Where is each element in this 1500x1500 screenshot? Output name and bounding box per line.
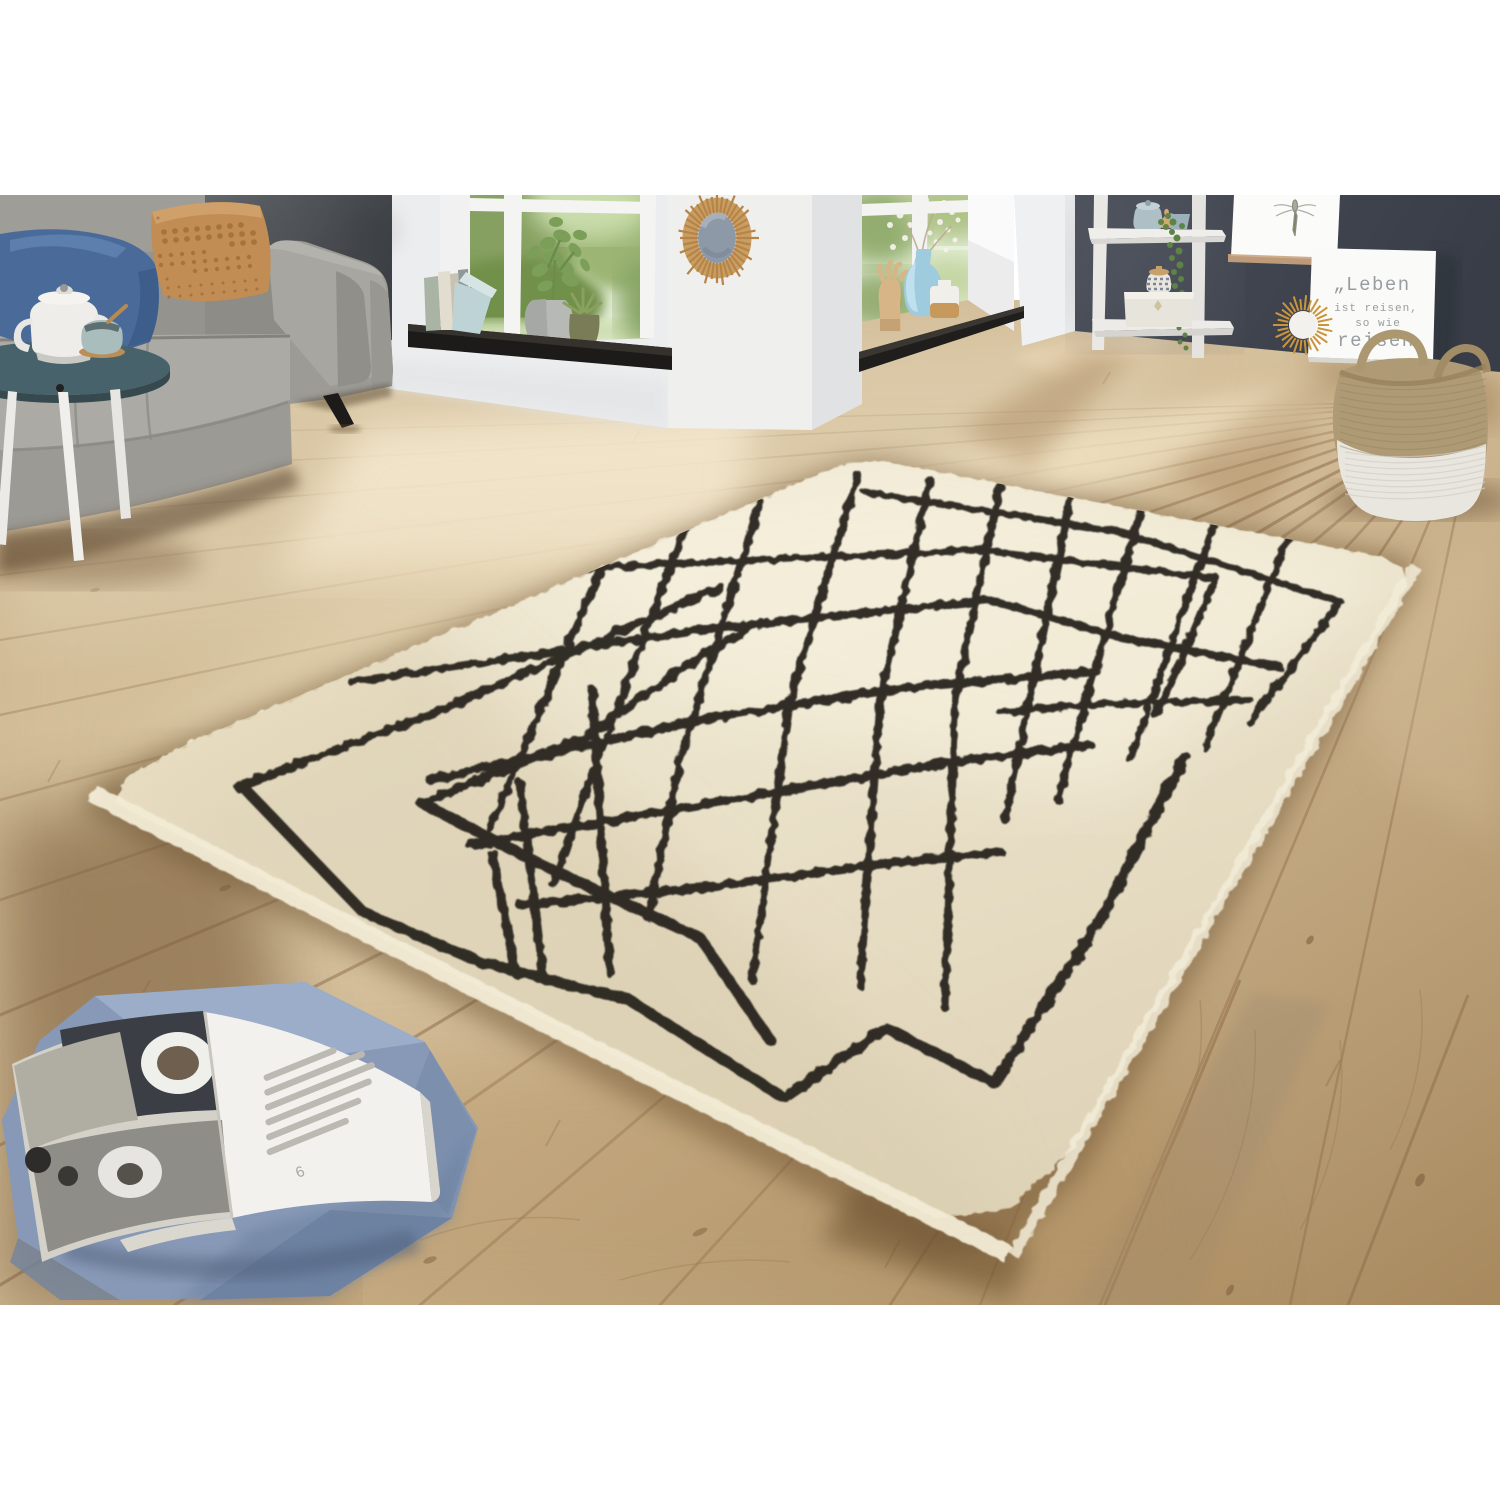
svg-text:so wie: so wie [1355, 318, 1401, 330]
svg-text:ist reisen,: ist reisen, [1334, 303, 1418, 315]
svg-text:„Leben: „Leben [1333, 274, 1410, 296]
